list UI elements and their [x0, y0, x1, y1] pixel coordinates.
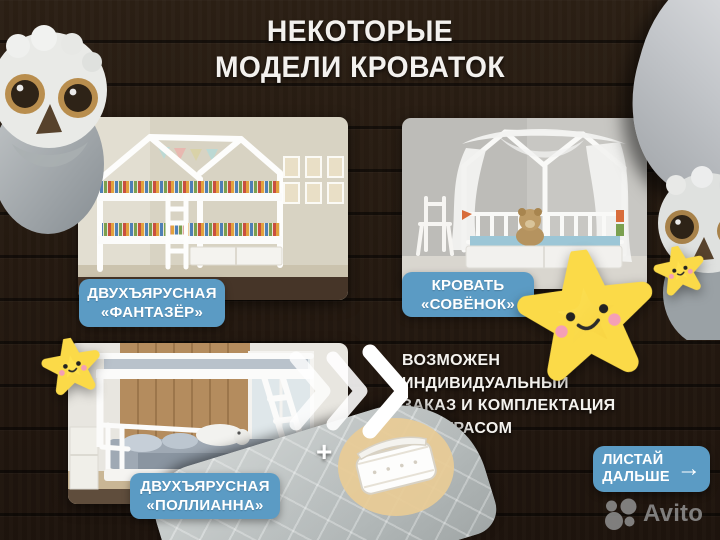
- swipe-next-label: ЛИСТАЙ ДАЛЬШЕ: [602, 452, 670, 486]
- title-line-1: НЕКОТОРЫЕ: [22, 14, 699, 50]
- label-bed-pollianna: ДВУХЪЯРУСНАЯ «ПОЛЛИАННА»: [130, 473, 280, 519]
- arrow-right-icon: →: [677, 457, 701, 481]
- triple-chevron-right-icon: [288, 344, 408, 439]
- label-line: ДВУХЪЯРУСНАЯ: [130, 477, 280, 496]
- avito-logo-icon: [604, 497, 638, 531]
- star-plush-big-image: [504, 241, 669, 393]
- swipe-next-button[interactable]: ЛИСТАЙ ДАЛЬШЕ →: [593, 446, 710, 492]
- avito-brand-text: Avito: [643, 500, 703, 528]
- bed-fantazer-scene: [78, 117, 348, 300]
- owl-plush-left-image: [0, 14, 118, 236]
- page-title: НЕКОТОРЫЕ МОДЕЛИ КРОВАТОК: [22, 14, 699, 86]
- cta-line: ДАЛЬШЕ: [602, 469, 670, 486]
- photo-bed-fantazer: [78, 117, 348, 300]
- label-bed-fantazer: ДВУХЪЯРУСНАЯ «ФАНТАЗЁР»: [79, 279, 225, 327]
- cta-line: ЛИСТАЙ: [602, 452, 670, 469]
- label-line: ДВУХЪЯРУСНАЯ: [79, 284, 225, 303]
- title-line-2: МОДЕЛИ КРОВАТОК: [22, 50, 699, 86]
- avito-watermark: Avito: [604, 497, 703, 531]
- label-line: «ФАНТАЗЁР»: [79, 303, 225, 322]
- promo-slide: НЕКОТОРЫЕ МОДЕЛИ КРОВАТОК: [0, 0, 720, 540]
- star-plush-small-left-image: [35, 333, 108, 401]
- label-line: «ПОЛЛИАННА»: [130, 496, 280, 515]
- plus-icon: +: [316, 436, 332, 468]
